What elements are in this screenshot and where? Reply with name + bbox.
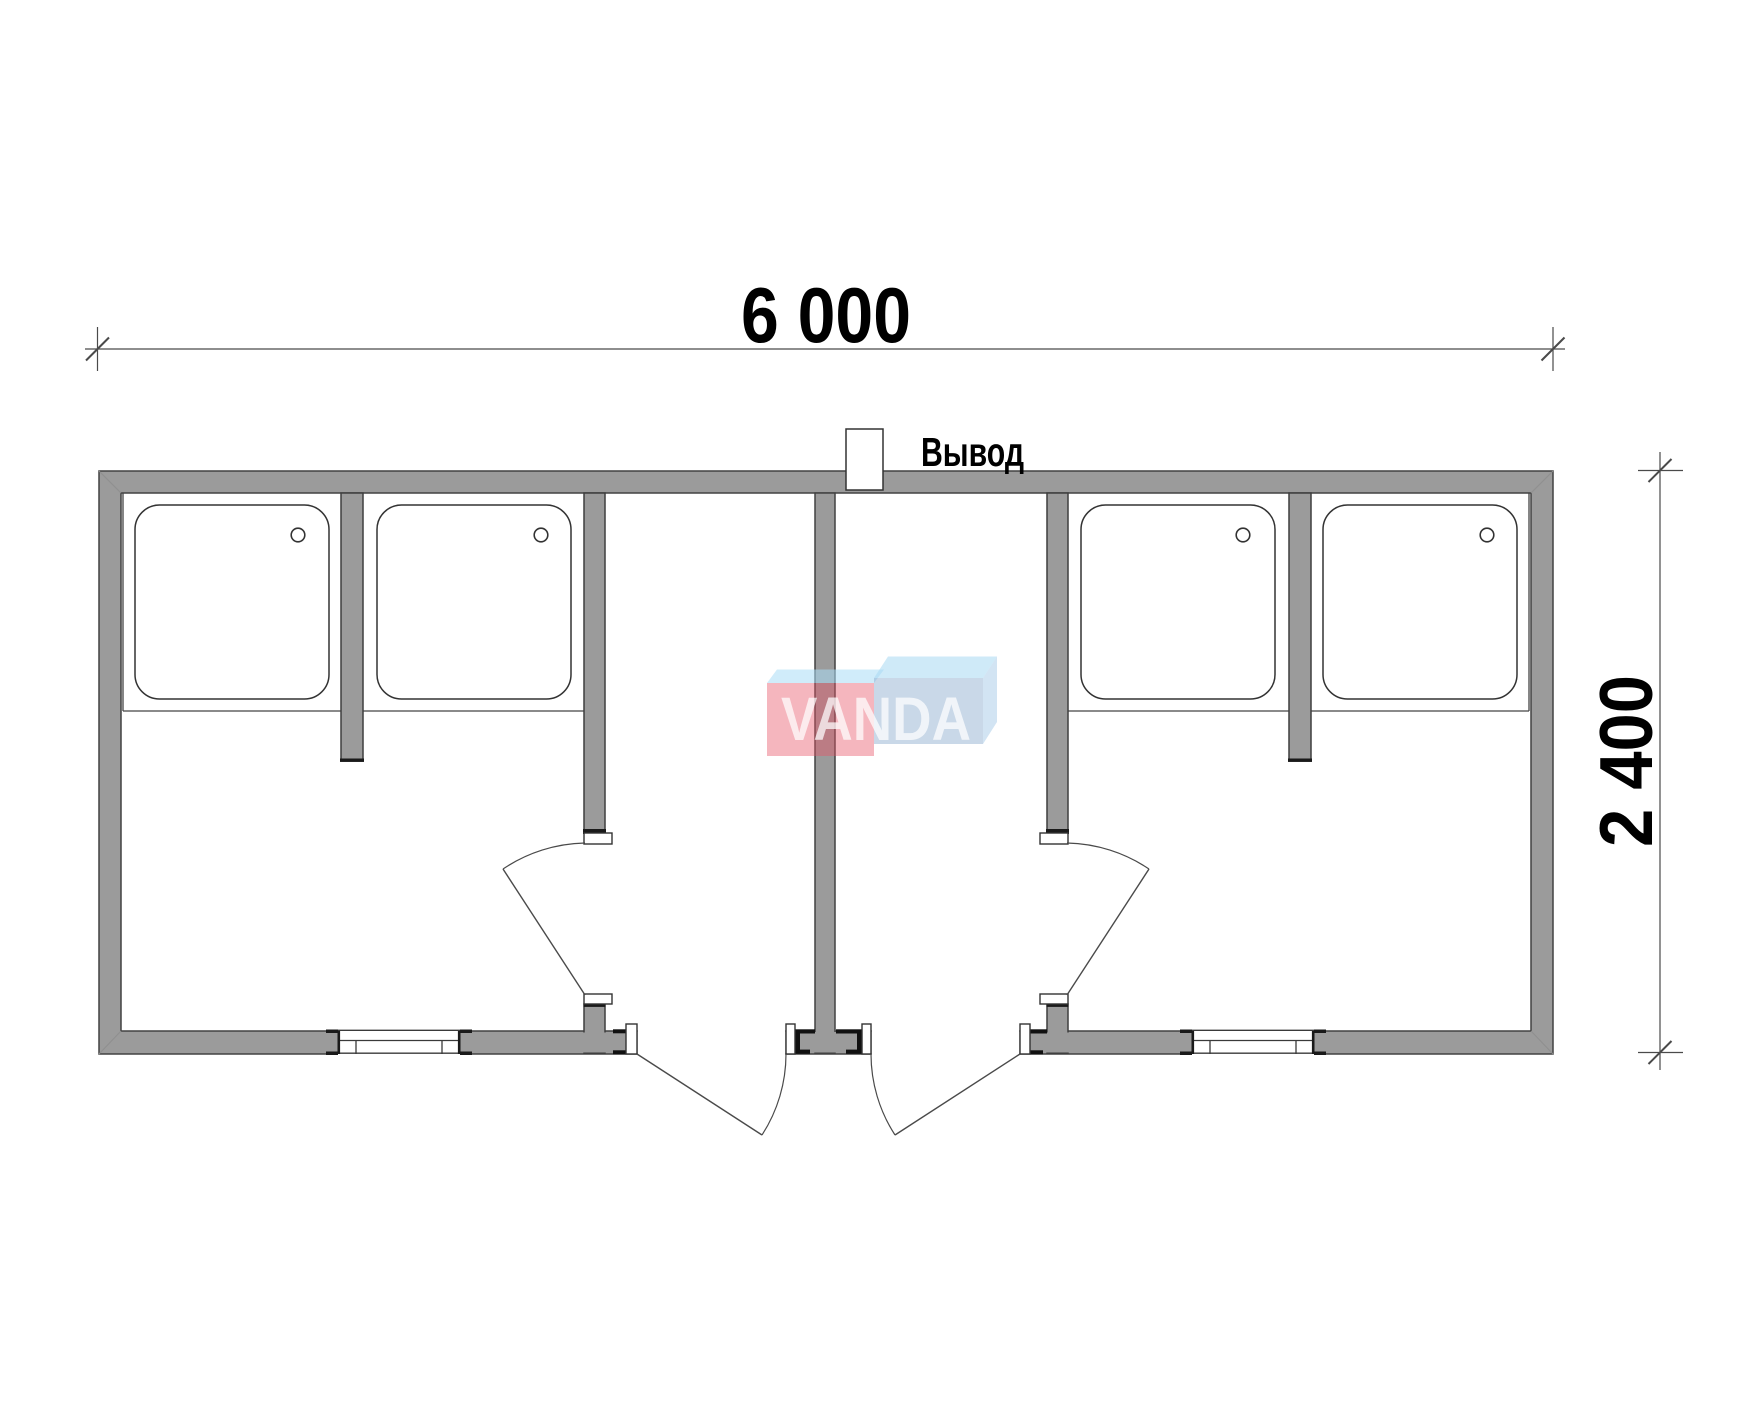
svg-text:Вывод: Вывод	[921, 429, 1024, 475]
svg-text:6 000: 6 000	[741, 271, 911, 359]
svg-text:VANDA: VANDA	[781, 685, 971, 753]
svg-text:2 400: 2 400	[1584, 675, 1668, 847]
